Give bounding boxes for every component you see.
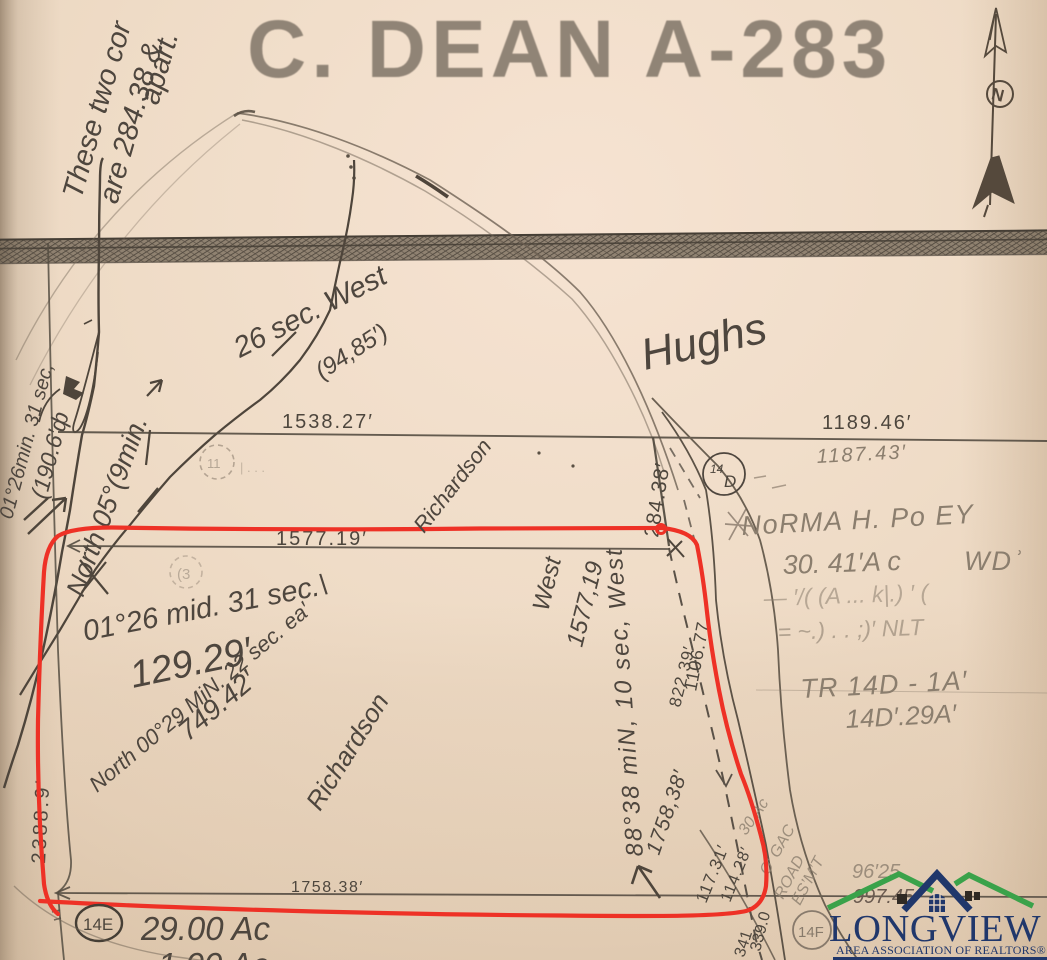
- svg-text:14: 14: [710, 462, 724, 476]
- svg-text:96′25: 96′25: [852, 861, 901, 883]
- svg-text:1189.46′: 1189.46′: [822, 412, 913, 434]
- svg-text:C. DEAN A-283: C. DEAN A-283: [247, 4, 892, 95]
- svg-text:11: 11: [207, 456, 221, 471]
- svg-text:D: D: [724, 472, 736, 491]
- svg-text:WDʾ: WDʾ: [964, 546, 1024, 576]
- svg-text:(3: (3: [177, 566, 190, 583]
- svg-text:AREA ASSOCIATION OF REALTORS®: AREA ASSOCIATION OF REALTORS®: [836, 943, 1046, 957]
- svg-text:14D′.29A′: 14D′.29A′: [845, 698, 958, 734]
- svg-text:1538.27′: 1538.27′: [282, 411, 374, 433]
- svg-text:1758.38′: 1758.38′: [291, 879, 364, 896]
- svg-text:14E: 14E: [83, 915, 113, 934]
- svg-text:30. 41′A c: 30. 41′A c: [782, 546, 902, 580]
- svg-text:14F: 14F: [798, 924, 824, 941]
- svg-text:29.00 Ac: 29.00 Ac: [140, 910, 271, 947]
- svg-text:1.00 Ac: 1.00 Ac: [158, 946, 269, 960]
- svg-text:| . . .: | . . .: [240, 460, 265, 475]
- svg-text:= ~.) . . ;)′ NLT: = ~.) . . ;)′ NLT: [777, 614, 926, 645]
